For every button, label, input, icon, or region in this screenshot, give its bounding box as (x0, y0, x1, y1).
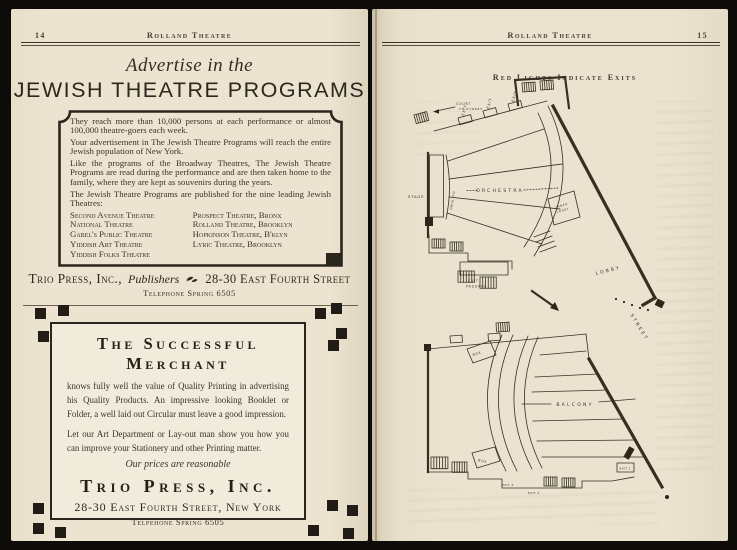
deco-square (328, 340, 339, 351)
ad1-heading-script: Advertise in the (11, 55, 368, 77)
ad2-address: 28-30 East Fourth Street, New York (67, 500, 289, 515)
exit-label: EXIT (486, 97, 493, 109)
divider-rule (23, 305, 358, 306)
deco-square (336, 328, 347, 339)
deco-square (315, 308, 326, 319)
stairs-icon (522, 82, 536, 92)
fleuron-icon (185, 274, 199, 284)
exit1-label: EXIT 1 (620, 467, 632, 471)
orchestra-label: ORCHESTRA (476, 188, 524, 194)
stage-label: STAGE (408, 194, 424, 199)
box-label: BOX (478, 458, 488, 464)
ad1-border (58, 110, 343, 267)
deco-square (33, 523, 44, 534)
lobby-label: LOBBY (595, 265, 622, 277)
deco-square (55, 527, 66, 538)
court-label: COURT (456, 102, 471, 106)
page-left: 14 Rolland Theatre Advertise in the JEWI… (11, 9, 368, 541)
stairs-icon (562, 478, 575, 487)
running-title-left: Rolland Theatre (25, 30, 354, 40)
street-label: STREET (628, 313, 649, 342)
scanned-program-spread: 14 Rolland Theatre Advertise in the JEWI… (0, 0, 737, 550)
deco-square (308, 525, 319, 536)
exit3-label: EXIT 3 (528, 491, 540, 495)
exit4-label: EXIT 4 (502, 483, 514, 487)
publisher-name: Trio Press, Inc., (29, 271, 122, 287)
deco-square (38, 331, 49, 342)
deco-square (58, 305, 69, 316)
balcony-level-plan: BALCONY BOX BOX EXIT 4 EXIT 3 EXIT 1 (424, 322, 669, 499)
theatre-floor-plan: EXIT EXIT EXIT COURT TO STREET STAGE ORC… (372, 9, 728, 541)
stairs-icon (452, 462, 467, 472)
ad2-paragraph: Let our Art Department or Lay-out man sh… (67, 427, 289, 455)
stairs-icon (544, 477, 557, 486)
deco-square (327, 500, 338, 511)
stairs-icon (431, 457, 448, 469)
ad1-heading-main: JEWISH THEATRE PROGRAMS (11, 78, 368, 103)
publisher-role: Publishers (128, 272, 179, 287)
orchestra-level-plan: EXIT EXIT EXIT COURT TO STREET STAGE ORC… (408, 77, 665, 342)
page-right: Rolland Theatre 15 Red Lights Indicate E… (372, 9, 728, 541)
publisher-address: 28-30 East Fourth Street (205, 272, 350, 287)
publisher-phone: Telephone Spring 6505 (11, 288, 368, 298)
publisher-line: Trio Press, Inc., Publishers 28-30 East … (21, 271, 358, 287)
deco-square (347, 505, 358, 516)
stairs-icon (414, 112, 429, 124)
ad2-paragraph: knows fully well the value of Quality Pr… (67, 379, 289, 421)
balcony-label: BALCONY (556, 402, 593, 408)
stairs-icon (496, 322, 510, 332)
ad2-tagline: Our prices are reasonable (67, 459, 289, 470)
ad2-company: Trio Press, Inc. (67, 476, 289, 497)
ad2-bordered-panel: The Successful Merchant knows fully well… (50, 322, 306, 520)
stairs-icon (450, 242, 463, 251)
stairs-icon (458, 271, 474, 282)
running-head-left: 14 Rolland Theatre (25, 30, 354, 42)
deco-square (35, 308, 46, 319)
orch-pit-label: ORCH. PIT (449, 190, 456, 210)
ad2-phone: Telpehone Spring 6505 (67, 517, 289, 527)
box-label: BOX (472, 350, 482, 357)
stairs-icon (480, 277, 496, 288)
head-rule-left (21, 42, 360, 46)
ad2-heading: The Successful Merchant (67, 334, 289, 374)
deco-square (331, 303, 342, 314)
deco-square (343, 528, 354, 539)
stairs-icon (540, 80, 554, 90)
deco-square (33, 503, 44, 514)
ad1-bordered-panel: They reach more than 10,000 persons at e… (58, 110, 343, 267)
court-label2: TO STREET (458, 107, 483, 111)
ad2-copy: The Successful Merchant knows fully well… (52, 324, 304, 518)
stairs-icon (432, 239, 445, 248)
